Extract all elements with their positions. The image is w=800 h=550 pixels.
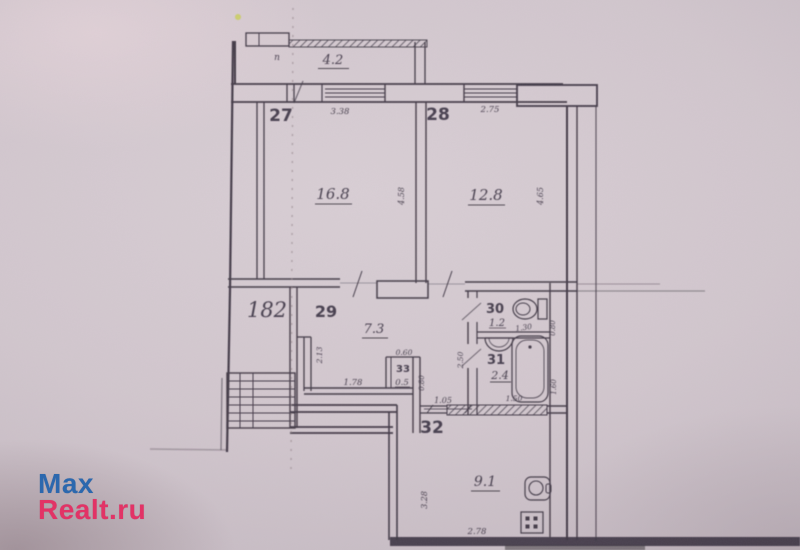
photo-grain xyxy=(0,0,800,550)
watermark-line2: Realt.ru xyxy=(38,497,146,523)
watermark: Max Realt.ru xyxy=(38,471,146,524)
floor-plan-photo: п 4.2 27 3.38 16.8 4.58 28 2.75 12.8 4.6… xyxy=(0,0,800,550)
floor-plan: п 4.2 27 3.38 16.8 4.58 28 2.75 12.8 4.6… xyxy=(0,0,800,550)
